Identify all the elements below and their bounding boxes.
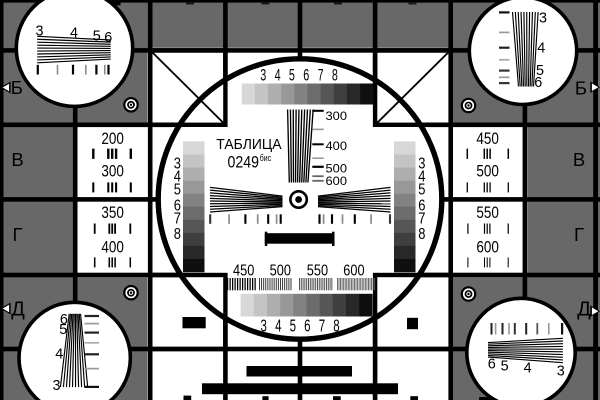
svg-text:300: 300 [101,162,124,181]
svg-text:500: 500 [476,162,499,181]
svg-text:5: 5 [290,316,296,336]
svg-text:4: 4 [524,360,532,377]
svg-text:6: 6 [488,355,496,372]
svg-text:400: 400 [326,139,348,153]
svg-text:450: 450 [233,263,254,280]
svg-text:3: 3 [36,23,44,40]
svg-text:6: 6 [303,65,309,84]
svg-text:7: 7 [318,65,324,84]
svg-text:В: В [573,149,585,170]
svg-text:350: 350 [101,203,124,222]
svg-text:5: 5 [418,182,425,199]
svg-text:450: 450 [476,129,499,148]
svg-text:5: 5 [93,27,101,44]
svg-text:6: 6 [304,316,310,336]
svg-text:7: 7 [319,316,325,336]
svg-text:7: 7 [174,210,181,227]
svg-text:4: 4 [70,24,78,41]
svg-text:Б: Б [11,77,23,98]
svg-text:200: 200 [101,129,124,148]
svg-text:600: 600 [326,174,348,188]
svg-text:3: 3 [539,10,547,27]
svg-text:8: 8 [418,226,425,243]
svg-text:600: 600 [476,238,499,257]
svg-text:8: 8 [332,65,338,84]
svg-text:600: 600 [343,263,364,280]
svg-text:0249: 0249 [228,153,260,172]
svg-text:4: 4 [537,40,545,57]
svg-text:3: 3 [53,377,61,394]
svg-text:6: 6 [104,29,112,46]
svg-text:Б: Б [575,78,587,99]
svg-text:бис: бис [260,153,272,163]
svg-text:550: 550 [307,263,328,280]
svg-text:5: 5 [174,182,181,199]
svg-text:5: 5 [501,357,509,374]
svg-text:3: 3 [557,363,565,380]
svg-text:ТАБЛИЦА: ТАБЛИЦА [216,137,282,153]
svg-text:5: 5 [289,65,295,84]
svg-text:6: 6 [534,74,542,91]
svg-text:3: 3 [260,65,266,84]
svg-text:Д: Д [577,299,591,321]
svg-text:4: 4 [275,65,281,84]
svg-text:В: В [11,149,23,170]
svg-text:300: 300 [326,109,348,123]
svg-text:8: 8 [333,316,339,336]
svg-text:7: 7 [418,210,425,227]
svg-text:5: 5 [59,321,67,338]
svg-text:8: 8 [174,226,181,243]
svg-text:Г: Г [574,224,584,245]
svg-text:550: 550 [476,203,499,222]
svg-text:3: 3 [261,316,267,336]
svg-text:400: 400 [101,238,124,257]
svg-text:4: 4 [55,345,63,362]
svg-text:Д: Д [11,299,25,321]
svg-text:500: 500 [270,263,291,280]
svg-text:4: 4 [275,316,282,336]
svg-text:Г: Г [12,224,22,245]
